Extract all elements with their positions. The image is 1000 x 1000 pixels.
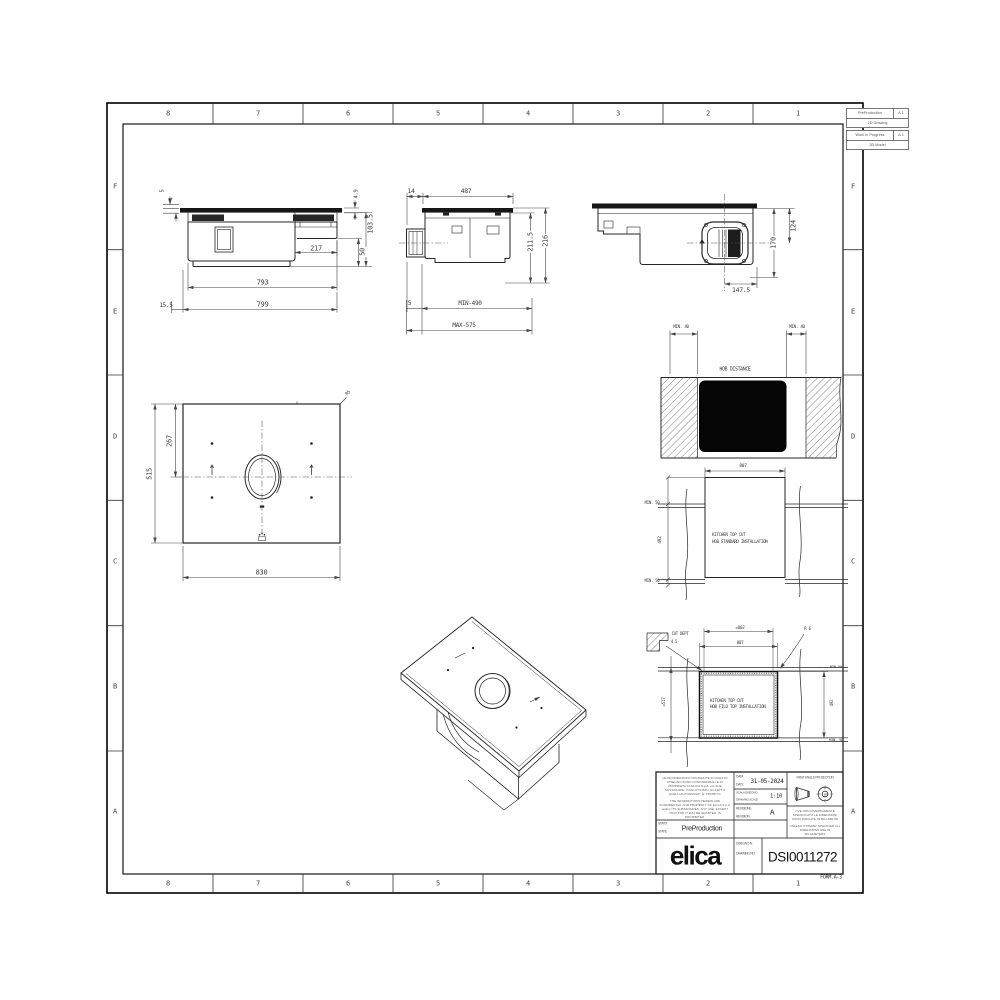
zone-col-top-3: 3 [616,110,620,117]
zone-col-bottom-1: 1 [796,881,800,888]
zone-row-right-f: F [851,184,855,191]
zone-row-left-b: B [113,684,117,691]
dim-267: 267 [166,435,173,447]
units-note: OVE NON DIVERSAMENTE SPECIFICATO LE DIME… [789,809,841,839]
revision-label: REVISION [736,815,749,818]
stato-label: STATO [658,822,667,825]
drawing-no-label: DRAWING NO. [736,852,755,855]
dim-min-40-left: MIN. 40 [673,325,689,329]
disegno-label: DISEGNO N. [736,842,752,845]
first-angle-projection-icon [795,786,834,803]
dim-487: 487 [461,188,472,195]
zone-row-right-b: B [851,684,855,691]
date-label: DATE [736,783,743,786]
dim-492-standard: 492 [658,536,663,543]
status-3d-rev: A.1 [893,131,908,140]
date-value: 31-05-2024 [750,779,783,785]
dim-124: 124 [790,220,797,232]
side-elevation-view [399,208,513,263]
scale-value: 1:10 [770,794,782,800]
status-box-3d-model: Work in Progress A.1 3D Model [846,130,909,150]
dim-4-9: 4.9 [354,189,360,198]
zone-row-left-d: D [113,434,117,441]
drawing-sheet: 8 7 6 5 4 3 2 1 8 7 6 5 4 3 2 1 F E D C … [0,0,1000,1000]
revision-value: A [770,810,774,817]
zone-col-top-4: 4 [526,110,530,117]
standard-cut-caption-1: KITCHEN TOP CUT [712,533,745,537]
zone-row-left-f: F [113,184,117,191]
filo-cut-view [647,633,848,767]
zone-col-bottom-7: 7 [256,881,260,888]
units-note-it: OVE NON DIVERSAMENTE SPECIFICATO LE DIME… [789,809,841,821]
zone-col-top-5: 5 [436,110,440,117]
zone-col-bottom-2: 2 [706,881,710,888]
zone-row-right-e: E [851,309,855,316]
dim-min-50-top-filo: MIN.50 [830,665,842,669]
scala-label: SCALA DISEGNO [736,791,757,794]
dim-216: 216 [542,234,549,248]
plan-view [171,398,353,544]
dim-211-5: 211.5 [527,231,534,253]
zone-row-left-c: C [113,559,117,566]
clearance-view [661,378,841,459]
dim-492-filo: 492 [829,700,833,707]
zone-row-left-e: E [113,309,117,316]
confidentiality-note-it: LE INFORMAZIONI CONTENUTE IN QUESTO DISE… [659,776,731,796]
dim-103-5: 103.5 [367,213,374,235]
elica-logo: elica [670,841,720,872]
dim-147-5: 147.5 [732,287,750,294]
status-2d-value: PreProduction [847,109,893,118]
dim-min-50-bottom-filo: MIN. 50 [829,738,843,742]
status-3d-value: Work in Progress [847,131,893,140]
status-box-2d-drawing: PreProduction A.1 2D Drawing [846,108,909,128]
dim-min-50-bottom: MIN. 50 [645,579,660,583]
dim-830: 830 [256,570,268,577]
zone-row-left-a: A [113,809,117,816]
isometric-view [401,617,586,810]
zone-col-top-2: 2 [706,110,710,117]
bottom-view [592,194,771,291]
front-elevation-view [180,208,342,267]
dim-517-filo: =517 [661,698,665,707]
units-note-en: UNLESS OTHERW. SPECIFIED ALL DIMENSIONS … [789,824,841,836]
dim-14: 14 [407,188,414,195]
zone-row-right-a: A [851,809,855,816]
zone-row-right-d: D [851,434,855,441]
dim-min-40-right: MIN. 40 [789,325,805,329]
zone-col-bottom-8: 8 [166,881,170,888]
standard-cut-dims [666,468,785,588]
confidentiality-note-en: THE INFORMATIONS HEREIN ARE CONFIDENTIAL… [659,799,731,819]
dim-15-5: 15.5 [159,303,172,309]
zone-row-right-c: C [851,559,855,566]
zone-col-top-7: 7 [256,110,260,117]
zone-col-top-8: 8 [166,110,170,117]
dim-807-standard: 807 [739,465,746,470]
filo-cut-caption-2: HOB FILO TOP INSTALLATION [710,705,766,709]
projection-label: FIRST ANGLE PROJECTION [797,776,834,779]
zone-col-bottom-4: 4 [526,881,530,888]
cut-dept-value: 4.5 [671,640,677,644]
status-3d-label: 3D Model [847,141,908,149]
cut-dept-label: CUT DEPT [672,632,689,636]
dim-793: 793 [257,280,269,287]
dim-min-490: MIN-490 [458,301,481,307]
dim-min-50-top: MIN. 50 [645,501,660,505]
zone-col-top-1: 1 [796,110,800,117]
confidentiality-note: LE INFORMAZIONI CONTENUTE IN QUESTO DISE… [659,776,731,822]
state-value: PreProduction [682,826,722,833]
hob-distance-label: HOB DISTANCE [719,368,750,373]
dim-170: 170 [771,236,778,250]
side-elevation-dims [407,193,550,335]
data-label: DATA [736,775,743,778]
dim-5-side: 5 [408,301,411,307]
dim-50: 50 [359,247,366,257]
drawing-linework [0,0,1000,1000]
scale-label: DRAWING SCALE [736,798,758,801]
revisione-label: REVISIONE [736,807,751,810]
dim-5-front: 5 [160,189,166,192]
form-label: FORM.A-3 [820,875,842,880]
dim-max-575: MAX-575 [452,323,475,329]
zone-col-top-6: 6 [346,110,350,117]
dim-4-front: 4 [169,197,175,200]
state-label: STATE [658,830,667,833]
dim-515: 515 [146,468,153,480]
dim-799: 799 [257,302,269,309]
dim-807-filo: 807 [737,640,744,644]
dim-802-filo: =802 [736,625,745,629]
standard-cut-caption-2: HOB STANDARD INSTALLATION [712,539,768,543]
dim-r6-filo: R 6 [804,627,811,631]
zone-col-bottom-6: 6 [346,881,350,888]
front-elevation-dims [163,197,372,314]
dim-217: 217 [310,245,322,252]
status-2d-rev: A.1 [893,109,908,118]
zone-col-bottom-3: 3 [616,881,620,888]
status-2d-label: 2D Drawing [847,119,908,127]
plan-view-dims [151,404,340,581]
filo-cut-caption-1: KITCHEN TOP CUT [710,698,743,702]
zone-col-bottom-5: 5 [436,881,440,888]
drawing-number: DSI0011272 [768,850,837,864]
